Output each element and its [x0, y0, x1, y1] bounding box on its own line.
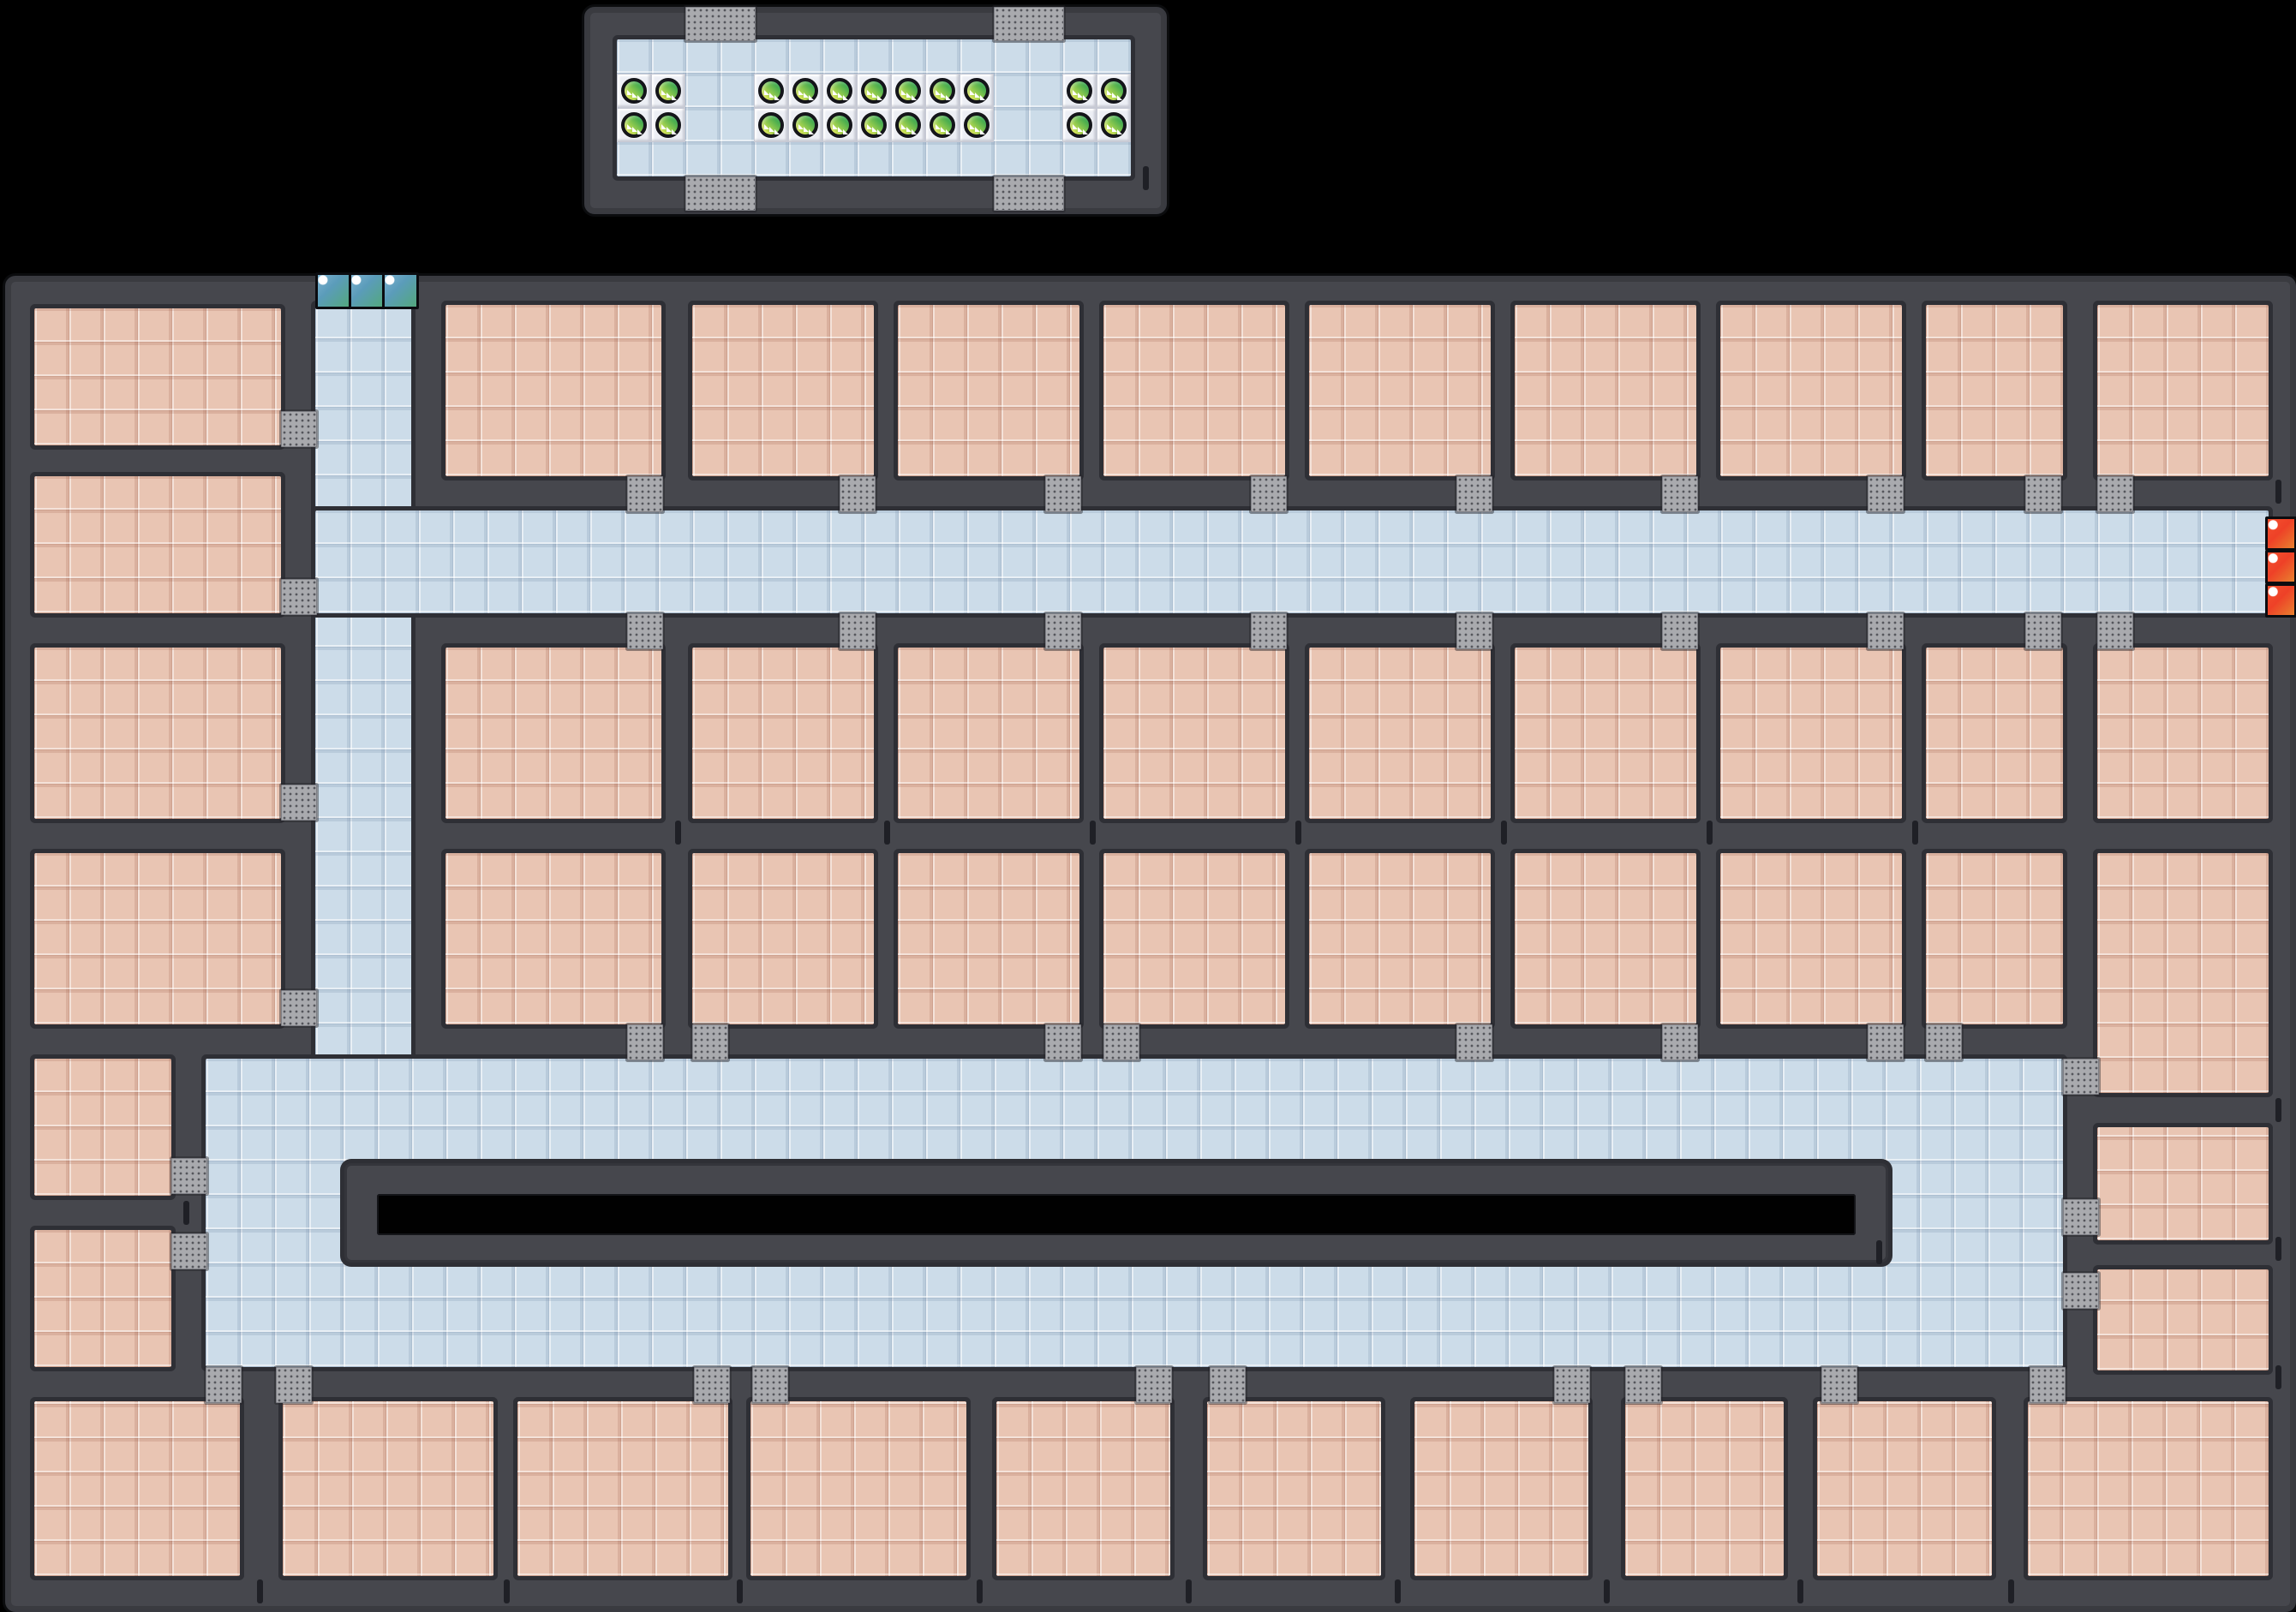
wall-joint-tick: [2008, 1579, 2014, 1603]
door-tile[interactable]: [1926, 1024, 1962, 1060]
room-floor: [34, 648, 281, 819]
door-tile[interactable]: [994, 7, 1064, 41]
room-floor: [1515, 648, 1696, 819]
room-floor: [1103, 648, 1285, 819]
door-tile[interactable]: [281, 579, 317, 615]
produce-item[interactable]: [930, 112, 955, 138]
produce-leaf-chevron-icon: [843, 95, 848, 100]
produce-leaf-chevron-icon: [672, 129, 677, 134]
room-floor: [1625, 1401, 1784, 1576]
room-floor: [898, 305, 1079, 476]
room-floor: [2097, 648, 2269, 819]
produce-shelf-tile: [960, 108, 994, 142]
door-tile[interactable]: [2063, 1199, 2099, 1235]
wall-joint-tick: [1876, 1240, 1882, 1264]
produce-item[interactable]: [792, 112, 818, 138]
produce-shelf-tile: [754, 74, 788, 108]
door-tile[interactable]: [1821, 1367, 1857, 1403]
produce-shelf-tile: [891, 108, 925, 142]
door-tile[interactable]: [752, 1367, 788, 1403]
entry-tile-teal[interactable]: [315, 272, 352, 309]
door-tile[interactable]: [1251, 613, 1287, 649]
room-floor: [1926, 305, 2063, 476]
door-tile[interactable]: [2097, 476, 2133, 512]
room-floor: [1926, 853, 2063, 1024]
door-tile[interactable]: [2097, 613, 2133, 649]
exit-tile-red[interactable]: [2265, 516, 2296, 551]
room-floor: [996, 1401, 1170, 1576]
produce-shelf-tile: [651, 74, 685, 108]
room-floor: [445, 853, 661, 1024]
entry-tile-teal[interactable]: [382, 272, 419, 309]
door-tile[interactable]: [2063, 1059, 2099, 1095]
room-floor: [1515, 853, 1696, 1024]
produce-shelf-tile: [857, 74, 891, 108]
door-tile[interactable]: [1625, 1367, 1661, 1403]
produce-shelf-tile: [960, 74, 994, 108]
room-floor: [34, 476, 281, 613]
room-floor: [692, 648, 874, 819]
produce-item[interactable]: [1101, 78, 1127, 104]
door-tile[interactable]: [1045, 613, 1081, 649]
door-tile[interactable]: [1045, 1024, 1081, 1060]
door-tile[interactable]: [1251, 476, 1287, 512]
door-tile[interactable]: [1868, 1024, 1904, 1060]
room-floor: [1309, 305, 1491, 476]
room-floor: [1103, 853, 1285, 1024]
produce-shelf-tile: [617, 74, 651, 108]
wall-joint-tick: [1912, 821, 1918, 845]
room-floor: [898, 853, 1079, 1024]
room-floor: [283, 1401, 493, 1576]
room-floor: [34, 308, 281, 445]
produce-item[interactable]: [861, 112, 887, 138]
room-floor: [445, 305, 661, 476]
room-floor: [2097, 1269, 2269, 1370]
door-tile[interactable]: [1868, 613, 1904, 649]
produce-leaf-chevron-icon: [809, 129, 814, 134]
produce-item[interactable]: [895, 112, 921, 138]
wall-joint-tick: [737, 1579, 743, 1603]
produce-leaf-chevron-icon: [912, 129, 917, 134]
room-floor: [517, 1401, 728, 1576]
produce-leaf-chevron-icon: [637, 95, 643, 100]
wall-joint-tick: [1604, 1579, 1610, 1603]
produce-leaf-chevron-icon: [637, 129, 643, 134]
exit-tile-red[interactable]: [2265, 583, 2296, 618]
wall-joint-tick: [2275, 1237, 2281, 1261]
produce-leaf-chevron-icon: [877, 129, 882, 134]
room-floor: [1207, 1401, 1381, 1576]
door-tile[interactable]: [1456, 476, 1492, 512]
produce-shelf-tile: [822, 74, 857, 108]
produce-leaf-chevron-icon: [980, 95, 985, 100]
room-floor: [34, 1401, 240, 1576]
room-floor: [1103, 305, 1285, 476]
produce-item[interactable]: [1067, 112, 1092, 138]
door-tile[interactable]: [692, 1024, 728, 1060]
door-tile[interactable]: [1662, 613, 1698, 649]
produce-item[interactable]: [964, 78, 990, 104]
wall-joint-tick: [183, 1201, 189, 1225]
produce-leaf-chevron-icon: [912, 95, 917, 100]
door-tile[interactable]: [685, 176, 756, 211]
door-tile[interactable]: [627, 476, 663, 512]
produce-shelf-tile: [891, 74, 925, 108]
door-tile[interactable]: [2025, 476, 2061, 512]
door-tile[interactable]: [1136, 1367, 1172, 1403]
produce-leaf-chevron-icon: [877, 95, 882, 100]
produce-leaf-chevron-icon: [843, 129, 848, 134]
wall-joint-tick: [1395, 1579, 1401, 1603]
produce-item[interactable]: [1067, 78, 1092, 104]
produce-item[interactable]: [621, 112, 647, 138]
game-map: [0, 0, 2296, 1610]
room-floor: [1309, 648, 1491, 819]
corridor-floor: [315, 510, 2269, 613]
room-floor: [1720, 853, 1902, 1024]
door-tile[interactable]: [281, 990, 317, 1026]
room-floor: [1309, 853, 1491, 1024]
wall-joint-tick: [2275, 1098, 2281, 1122]
door-tile[interactable]: [694, 1367, 730, 1403]
wall-joint-tick: [504, 1579, 510, 1603]
door-tile[interactable]: [1456, 613, 1492, 649]
door-tile[interactable]: [171, 1233, 207, 1269]
wall-joint-tick: [1295, 821, 1301, 845]
room-floor: [2097, 1127, 2269, 1240]
wall-joint-tick: [1143, 166, 1149, 190]
produce-item[interactable]: [930, 78, 955, 104]
produce-item[interactable]: [827, 112, 852, 138]
door-tile[interactable]: [1554, 1367, 1590, 1403]
produce-item[interactable]: [827, 78, 852, 104]
room-floor: [34, 1059, 171, 1196]
room-floor: [692, 305, 874, 476]
door-tile[interactable]: [627, 613, 663, 649]
produce-leaf-chevron-icon: [1083, 129, 1088, 134]
room-floor: [34, 1230, 171, 1367]
room-floor: [34, 853, 281, 1024]
produce-shelf-tile: [1062, 108, 1097, 142]
produce-shelf-tile: [788, 74, 822, 108]
produce-leaf-chevron-icon: [672, 95, 677, 100]
produce-item[interactable]: [1101, 112, 1127, 138]
produce-leaf-chevron-icon: [1083, 95, 1088, 100]
room-floor: [2028, 1401, 2269, 1576]
door-tile[interactable]: [627, 1024, 663, 1060]
produce-leaf-chevron-icon: [809, 95, 814, 100]
screenshot-root: [0, 0, 2296, 1610]
room-floor: [1926, 648, 2063, 819]
door-tile[interactable]: [685, 7, 756, 41]
produce-leaf-chevron-icon: [946, 129, 951, 134]
produce-shelf-tile: [788, 108, 822, 142]
wall-joint-tick: [884, 821, 890, 845]
produce-leaf-chevron-icon: [774, 95, 780, 100]
door-tile[interactable]: [2025, 613, 2061, 649]
door-tile[interactable]: [276, 1367, 312, 1403]
room-floor: [750, 1401, 966, 1576]
door-tile[interactable]: [994, 176, 1064, 211]
produce-leaf-chevron-icon: [946, 95, 951, 100]
door-tile[interactable]: [171, 1158, 207, 1194]
produce-item[interactable]: [655, 112, 681, 138]
door-tile[interactable]: [281, 785, 317, 821]
produce-shelf-tile: [651, 108, 685, 142]
door-tile[interactable]: [1868, 476, 1904, 512]
wall-joint-tick: [2275, 1365, 2281, 1389]
door-tile[interactable]: [1456, 1024, 1492, 1060]
produce-shelf-tile: [1062, 74, 1097, 108]
wall-joint-tick: [977, 1579, 983, 1603]
wall-joint-tick: [257, 1579, 263, 1603]
pit-opening: [377, 1194, 1856, 1235]
door-tile[interactable]: [840, 613, 876, 649]
room-floor: [2097, 853, 2269, 1093]
exit-tile-red[interactable]: [2265, 550, 2296, 584]
door-tile[interactable]: [1045, 476, 1081, 512]
door-tile[interactable]: [1662, 1024, 1698, 1060]
wall-joint-tick: [2275, 480, 2281, 504]
room-floor: [1720, 305, 1902, 476]
room-floor: [1515, 305, 1696, 476]
produce-shelf-tile: [1097, 108, 1131, 142]
produce-item[interactable]: [621, 78, 647, 104]
room-floor: [898, 648, 1079, 819]
door-tile[interactable]: [2030, 1367, 2066, 1403]
door-tile[interactable]: [1210, 1367, 1246, 1403]
wall-joint-tick: [1186, 1579, 1192, 1603]
room-floor: [1414, 1401, 1588, 1576]
produce-item[interactable]: [758, 78, 784, 104]
produce-item[interactable]: [895, 78, 921, 104]
produce-leaf-chevron-icon: [1117, 129, 1122, 134]
room-floor: [692, 853, 874, 1024]
corridor-floor: [315, 305, 411, 1059]
wall-joint-tick: [1501, 821, 1507, 845]
produce-item[interactable]: [655, 78, 681, 104]
room-floor: [2097, 305, 2269, 476]
door-tile[interactable]: [1662, 476, 1698, 512]
door-tile[interactable]: [840, 476, 876, 512]
produce-item[interactable]: [758, 112, 784, 138]
entry-tile-teal[interactable]: [349, 272, 386, 309]
door-tile[interactable]: [206, 1367, 242, 1403]
produce-item[interactable]: [792, 78, 818, 104]
produce-shelf-tile: [925, 108, 960, 142]
room-floor: [445, 648, 661, 819]
door-tile[interactable]: [1103, 1024, 1139, 1060]
door-tile[interactable]: [281, 411, 317, 447]
wall-joint-tick: [675, 821, 681, 845]
room-floor: [1817, 1401, 1992, 1576]
produce-leaf-chevron-icon: [774, 129, 780, 134]
produce-leaf-chevron-icon: [1117, 95, 1122, 100]
room-floor: [1720, 648, 1902, 819]
wall-joint-tick: [1707, 821, 1713, 845]
produce-shelf-tile: [822, 108, 857, 142]
produce-shelf-tile: [617, 108, 651, 142]
wall-joint-tick: [1797, 1579, 1803, 1603]
wall-joint-tick: [1090, 821, 1096, 845]
produce-shelf-tile: [857, 108, 891, 142]
produce-item[interactable]: [861, 78, 887, 104]
produce-shelf-tile: [925, 74, 960, 108]
produce-leaf-chevron-icon: [980, 129, 985, 134]
produce-item[interactable]: [964, 112, 990, 138]
produce-shelf-tile: [754, 108, 788, 142]
door-tile[interactable]: [2063, 1273, 2099, 1309]
produce-shelf-tile: [1097, 74, 1131, 108]
